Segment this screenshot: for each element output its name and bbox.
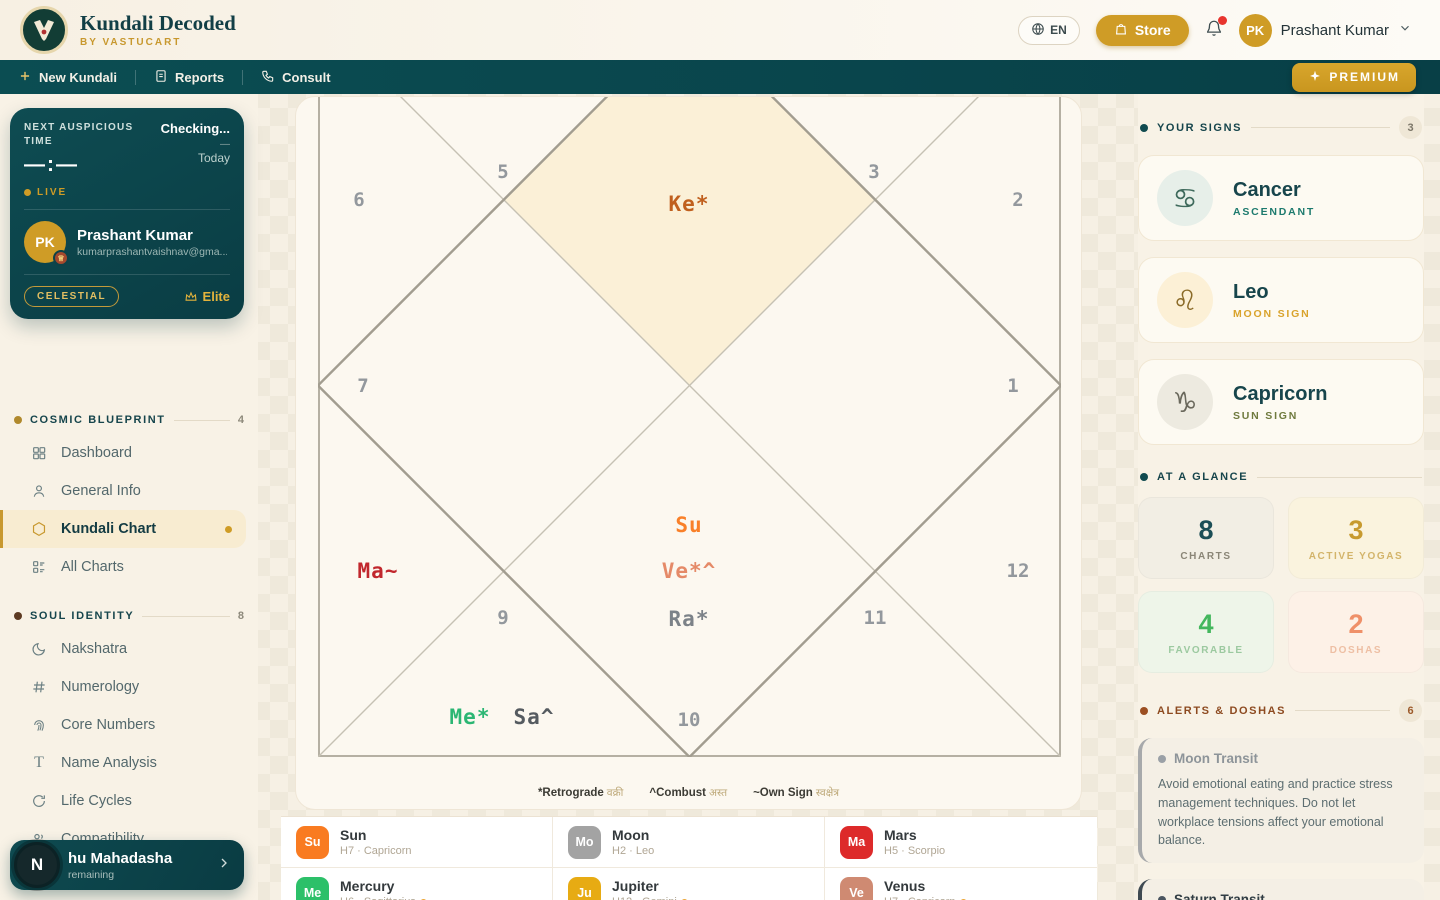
section-header-soul-identity: SOUL IDENTITY 8 [0, 610, 258, 622]
auspicious-time-card[interactable]: NEXT AUSPICIOUS TIME Checking... — Today… [10, 108, 244, 319]
stat-doshas[interactable]: 2 DOSHAS [1288, 591, 1424, 673]
auspicious-status: Checking... [161, 121, 230, 136]
house-number: 12 [1007, 560, 1030, 582]
charts-list-icon [30, 559, 48, 575]
active-indicator-dot [225, 526, 232, 533]
store-button[interactable]: Store [1096, 15, 1189, 46]
legend-retrograde: *Retrogradeवक्री [538, 786, 623, 800]
chevron-right-icon [216, 855, 232, 876]
app-root: Kundali Decoded BY VASTUCART EN Store PK… [0, 0, 1440, 900]
sidebar-item-life-cycles[interactable]: Life Cycles [0, 782, 258, 820]
section-header-at-a-glance: AT A GLANCE [1140, 471, 1422, 483]
planet-mars: Ma~ [358, 559, 399, 583]
sign-name: Leo [1233, 281, 1310, 304]
sidebar-item-numerology[interactable]: Numerology [0, 668, 258, 706]
stat-favorable[interactable]: 4 FAVORABLE [1138, 591, 1274, 673]
highlighted-house [504, 96, 876, 386]
profile-row[interactable]: PK ♕ Prashant Kumar kumarprashantvaishna… [24, 221, 230, 263]
section-count: 4 [238, 414, 244, 426]
capricorn-zodiac-icon: ♑ [1157, 374, 1213, 430]
language-label: EN [1050, 23, 1067, 37]
house-number: 5 [497, 161, 508, 183]
sign-role: ASCENDANT [1233, 206, 1315, 218]
planet-list: Su Sun H7 · Capricorn Mo Moon H2 · Leo M… [281, 816, 1097, 900]
alert-body: Avoid emotional eating and practice stre… [1158, 775, 1408, 850]
sidebar-item-general-info[interactable]: General Info [0, 472, 258, 510]
letter-t-icon: T [30, 755, 48, 771]
profile-avatar: PK ♕ [24, 221, 66, 263]
alert-dot [1158, 755, 1166, 763]
section-dot [14, 612, 22, 620]
cancer-zodiac-icon: ♋ [1157, 170, 1213, 226]
language-switcher[interactable]: EN [1018, 16, 1080, 45]
cycle-arrows-icon [30, 793, 48, 809]
planet-badge: Me [296, 877, 329, 900]
premium-button[interactable]: PREMIUM [1292, 63, 1416, 92]
planet-sun: Su [675, 513, 702, 537]
alert-dot [1158, 896, 1166, 900]
planet-venus: Ve*^ [662, 559, 717, 583]
sidebar-item-kundali-chart[interactable]: Kundali Chart [0, 510, 246, 548]
house-number: 11 [864, 607, 887, 629]
user-avatar: PK [1239, 14, 1272, 47]
auspicious-day: Today [161, 151, 230, 165]
crown-badge-icon: ♕ [53, 250, 69, 266]
hexagon-icon [30, 521, 48, 537]
house-number: 9 [497, 607, 508, 629]
brand[interactable]: Kundali Decoded BY VASTUCART [0, 6, 236, 54]
planet-row-moon[interactable]: Mo Moon H2 · Leo [553, 817, 825, 868]
left-sidebar: NEXT AUSPICIOUS TIME Checking... — Today… [0, 94, 258, 900]
section-dot [1140, 124, 1148, 132]
sidebar-item-nakshatra[interactable]: Nakshatra [0, 630, 258, 668]
house-number: 2 [1012, 189, 1023, 211]
sidebar-item-all-charts[interactable]: All Charts [0, 548, 258, 586]
auspicious-dash: — [161, 139, 230, 150]
planet-badge: Su [296, 826, 329, 859]
planet-rahu: Ra* [669, 607, 710, 631]
chevron-down-icon [1398, 21, 1412, 40]
phone-icon [261, 69, 275, 86]
planet-row-jupiter[interactable]: Ju Jupiter H12 · Gemini [553, 868, 825, 900]
consult-button[interactable]: Consult [243, 60, 348, 94]
dashboard-grid-icon [30, 445, 48, 461]
planet-row-mercury[interactable]: Me Mercury H6 · Sagittarius [281, 868, 553, 900]
sign-card-sun-sign[interactable]: ♑ Capricorn SUN SIGN [1138, 359, 1424, 445]
planet-badge: Ma [840, 826, 873, 859]
stat-active-yogas[interactable]: 3 ACTIVE YOGAS [1288, 497, 1424, 579]
leo-zodiac-icon: ♌ [1157, 272, 1213, 328]
planet-row-venus[interactable]: Ve Venus H7 · Capricorn [825, 868, 1097, 900]
person-icon [30, 483, 48, 499]
chart-legend: *Retrogradeवक्री ^Combustअस्त ~Own Signस… [296, 786, 1081, 800]
kundali-chart-card: 5 3 6 2 7 1 9 11 12 10 Ke* Su Ve*^ Ra* M… [295, 96, 1082, 810]
sign-name: Capricorn [1233, 383, 1327, 406]
section-header-alerts-doshas: ALERTS & DOSHAS 6 [1140, 699, 1422, 722]
stats-grid: 8 CHARTS 3 ACTIVE YOGAS 4 FAVORABLE 2 DO… [1138, 497, 1424, 673]
kundali-chart[interactable]: 5 3 6 2 7 1 9 11 12 10 Ke* Su Ve*^ Ra* M… [318, 96, 1061, 757]
user-name: Prashant Kumar [1281, 22, 1389, 39]
mahadasha-title: hu Mahadasha [68, 850, 172, 867]
sparkle-icon [1308, 69, 1322, 86]
sign-card-moon-sign[interactable]: ♌ Leo MOON SIGN [1138, 257, 1424, 343]
section-dot [1140, 473, 1148, 481]
house-number: 3 [868, 161, 879, 183]
sidebar-item-core-numbers[interactable]: Core Numbers [0, 706, 258, 744]
reports-button[interactable]: Reports [136, 60, 242, 94]
tier-badge: CELESTIAL [24, 286, 119, 307]
live-label: LIVE [37, 187, 67, 198]
section-count: 8 [238, 610, 244, 622]
divider [24, 209, 230, 210]
legend-own-sign: ~Own Signस्वक्षेत्र [753, 786, 839, 800]
planet-row-mars[interactable]: Ma Mars H5 · Scorpio [825, 817, 1097, 868]
sidebar-item-name-analysis[interactable]: T Name Analysis [0, 744, 258, 782]
section-dot [1140, 707, 1148, 715]
fingerprint-icon [30, 717, 48, 733]
house-number: 1 [1007, 375, 1018, 397]
shopping-bag-icon [1114, 22, 1128, 39]
alert-card-moon-transit[interactable]: Moon Transit Avoid emotional eating and … [1138, 738, 1424, 863]
moon-icon [30, 641, 48, 657]
divider [24, 274, 230, 275]
vastucart-logo-icon [20, 6, 68, 54]
live-dot [24, 189, 31, 196]
sidebar-item-dashboard[interactable]: Dashboard [0, 434, 258, 472]
plus-icon [18, 69, 32, 86]
mahadasha-card[interactable]: N hu Mahadasha remaining [10, 840, 244, 890]
page-title: Kundali Decoded [80, 12, 236, 34]
new-kundali-button[interactable]: New Kundali [0, 60, 135, 94]
notification-badge [1218, 16, 1227, 25]
planet-mercury: Me* [450, 705, 491, 729]
crown-icon [184, 290, 198, 304]
profile-name: Prashant Kumar [77, 227, 227, 244]
planet-saturn: Sa^ [514, 705, 555, 729]
alert-card-saturn-transit[interactable]: Saturn Transit [1138, 879, 1424, 900]
planet-badge: Ju [568, 877, 601, 900]
mahadasha-avatar: N [14, 842, 60, 888]
profile-email: kumarprashantvaishnav@gma... [77, 246, 227, 258]
legend-combust: ^Combustअस्त [649, 786, 727, 800]
sign-role: MOON SIGN [1233, 308, 1310, 320]
house-number: 7 [357, 375, 368, 397]
stat-charts[interactable]: 8 CHARTS [1138, 497, 1274, 579]
section-count: 3 [1399, 116, 1422, 139]
hash-icon [30, 679, 48, 695]
planet-row-sun[interactable]: Su Sun H7 · Capricorn [281, 817, 553, 868]
section-header-cosmic-blueprint: COSMIC BLUEPRINT 4 [0, 414, 258, 426]
globe-icon [1031, 22, 1045, 39]
right-sidebar: YOUR SIGNS 3 ♋ Cancer ASCENDANT ♌ Leo MO… [1138, 94, 1424, 900]
section-count: 6 [1399, 699, 1422, 722]
planet-badge: Mo [568, 826, 601, 859]
document-icon [154, 69, 168, 86]
sign-name: Cancer [1233, 179, 1315, 202]
sign-card-ascendant[interactable]: ♋ Cancer ASCENDANT [1138, 155, 1424, 241]
brand-subtitle: BY VASTUCART [80, 37, 236, 48]
notifications-bell-icon[interactable] [1205, 19, 1223, 42]
section-dot [14, 416, 22, 424]
primary-nav: New Kundali Reports Consult PREMIUM [0, 60, 1440, 94]
plan-badge[interactable]: Elite [184, 289, 230, 304]
sign-role: SUN SIGN [1233, 410, 1327, 422]
house-number: 10 [678, 709, 701, 731]
user-menu[interactable]: PK Prashant Kumar [1239, 14, 1412, 47]
planet-ketu: Ke* [669, 192, 710, 216]
house-number: 6 [353, 189, 364, 211]
section-header-your-signs: YOUR SIGNS 3 [1140, 116, 1422, 139]
mahadasha-subtitle: remaining [68, 869, 172, 881]
planet-badge: Ve [840, 877, 873, 900]
top-header: Kundali Decoded BY VASTUCART EN Store PK… [0, 0, 1440, 60]
